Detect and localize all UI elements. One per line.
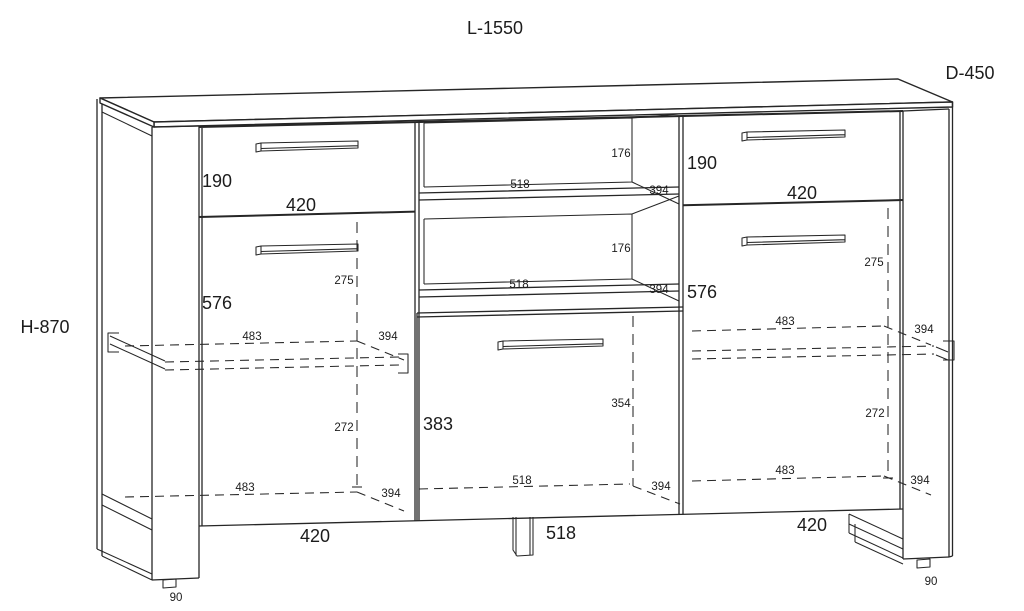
middle-niche-2 bbox=[419, 196, 679, 301]
left-leg-frame bbox=[97, 99, 199, 588]
cabinet-body bbox=[199, 111, 903, 526]
furniture-dimension-diagram: L-1550 D-450 H-870 190 420 576 275 483 3… bbox=[0, 0, 1024, 611]
left-shelf-gap: 272 bbox=[334, 422, 353, 434]
middle-inner-depth: 394 bbox=[651, 481, 671, 493]
right-leg-frame bbox=[849, 102, 953, 568]
overall-length-label: L-1550 bbox=[467, 18, 523, 38]
left-bottom-width: 483 bbox=[235, 482, 254, 494]
left-drawer-width: 420 bbox=[286, 195, 316, 215]
right-shelf-dimension-lines bbox=[692, 208, 954, 495]
left-shelf-width: 483 bbox=[242, 331, 261, 343]
left-drawer-handle bbox=[256, 141, 358, 152]
left-bottom-depth: 394 bbox=[381, 488, 401, 500]
left-foot-glide bbox=[163, 579, 176, 588]
right-handle-offset: 275 bbox=[864, 257, 883, 269]
middle-niche-1 bbox=[419, 114, 679, 204]
right-leg-height: 90 bbox=[925, 576, 938, 588]
right-bottom-width: 483 bbox=[775, 465, 794, 477]
right-drawer-width: 420 bbox=[787, 183, 817, 203]
left-drawer-height: 190 bbox=[202, 171, 232, 191]
right-shelf-depth: 394 bbox=[914, 324, 934, 336]
right-section-width: 420 bbox=[797, 515, 827, 535]
right-door-handle bbox=[742, 235, 845, 246]
right-bottom-depth: 394 bbox=[910, 475, 930, 487]
left-leg-height: 90 bbox=[170, 592, 183, 604]
right-foot-glide bbox=[917, 559, 930, 568]
left-handle-offset: 275 bbox=[334, 275, 353, 287]
niche2-width: 518 bbox=[509, 279, 528, 291]
center-foot bbox=[513, 517, 533, 556]
middle-drawer-height: 383 bbox=[423, 414, 453, 434]
overall-depth-label: D-450 bbox=[945, 63, 994, 83]
left-shelf-dimension-lines bbox=[108, 222, 408, 511]
middle-drawer-handle bbox=[498, 339, 603, 350]
left-door-handle bbox=[256, 244, 358, 255]
left-door-height: 576 bbox=[202, 293, 232, 313]
sideboard-technical-drawing: L-1550 D-450 H-870 190 420 576 275 483 3… bbox=[0, 0, 1024, 611]
niche2-depth: 394 bbox=[649, 284, 669, 296]
niche1-width: 518 bbox=[510, 179, 529, 191]
left-shelf-depth: 394 bbox=[378, 331, 398, 343]
right-shelf-gap: 272 bbox=[865, 408, 884, 420]
right-shelf-width: 483 bbox=[775, 316, 794, 328]
niche1-depth: 394 bbox=[649, 185, 669, 197]
middle-inner-height: 354 bbox=[611, 398, 631, 410]
right-drawer-handle bbox=[742, 130, 845, 141]
niche1-height: 176 bbox=[611, 148, 630, 160]
middle-section-width: 518 bbox=[546, 523, 576, 543]
right-drawer-height: 190 bbox=[687, 153, 717, 173]
middle-drawer bbox=[417, 307, 683, 521]
niche2-height: 176 bbox=[611, 243, 630, 255]
right-door-height: 576 bbox=[687, 282, 717, 302]
middle-inner-width: 518 bbox=[512, 475, 531, 487]
overall-height-label: H-870 bbox=[20, 317, 69, 337]
left-section-width: 420 bbox=[300, 526, 330, 546]
